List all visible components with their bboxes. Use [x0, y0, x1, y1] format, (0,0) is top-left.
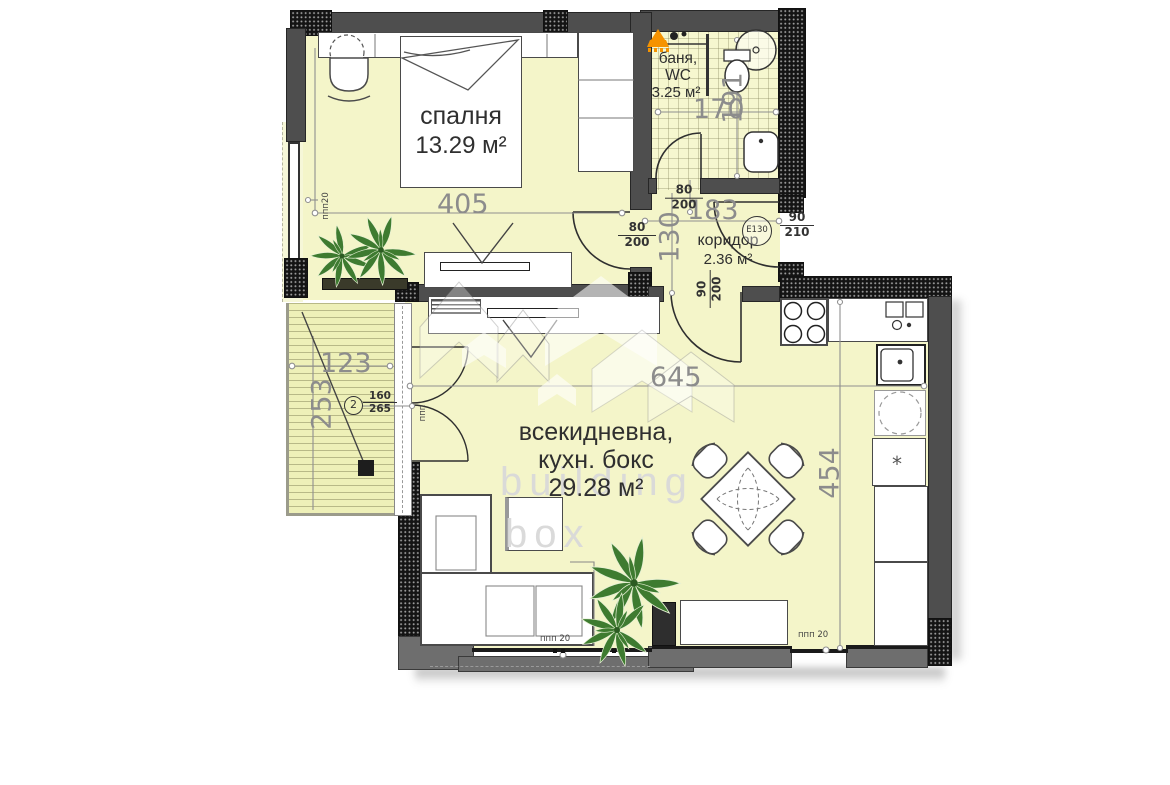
watermark-house-icon — [497, 310, 549, 382]
dim-corridor-depth: 130 — [657, 211, 684, 263]
bedroom-area: 13.29 м² — [391, 132, 531, 160]
entrance-door-size: 90 210 — [780, 211, 814, 240]
watermark-houses — [0, 0, 1170, 785]
living-name-line1: всекидневна, — [496, 418, 696, 447]
balcony-door-size: 160 265 — [363, 390, 397, 415]
corridor-area: 2.36 м² — [688, 251, 768, 268]
living-room-door-size: 90 200 — [696, 270, 725, 308]
dim-bathroom-depth: 191 — [720, 72, 747, 124]
watermark-text-line2: box — [505, 512, 591, 557]
living-door-size-wrap: 90 200 — [710, 289, 748, 318]
living-window-marker-left: ппп 20 — [540, 634, 570, 644]
bedroom-window-marker: ппп20 — [321, 192, 331, 220]
dim-bedroom-width: 405 — [437, 191, 489, 218]
entrance-door-fire-rating: E130 — [742, 216, 772, 246]
living-area: 29.28 м² — [496, 474, 696, 503]
balcony-frame-marker-wrap: ппп — [423, 407, 440, 425]
bedroom-name: спалня — [391, 102, 531, 131]
living-name-line2: кухн. бокс — [496, 446, 696, 475]
bedroom-window-marker-wrap: ппп20 — [326, 200, 354, 218]
bathroom-door-size: 80 200 — [665, 184, 703, 213]
balcony-door-frame-marker: ппп — [418, 405, 428, 422]
bathroom-name-line2: WC — [640, 67, 716, 85]
living-window-marker-right: ппп 20 — [798, 630, 828, 640]
floor-plan-canvas: * — [0, 0, 1170, 785]
dim-balcony-depth: 253 — [309, 378, 336, 430]
watermark-house-icon — [420, 282, 498, 378]
dim-balcony-width: 123 — [320, 350, 372, 377]
watermark-house-icon — [538, 374, 576, 406]
dim-living-width: 645 — [650, 364, 702, 391]
bathroom-door-size-wrap: 80 200 — [684, 198, 722, 227]
bedroom-door-size: 80 200 — [618, 221, 656, 250]
bathroom-name-line1: баня, — [640, 50, 716, 68]
balcony-door-index: 2 — [344, 396, 363, 415]
dim-living-depth: 454 — [817, 447, 844, 499]
